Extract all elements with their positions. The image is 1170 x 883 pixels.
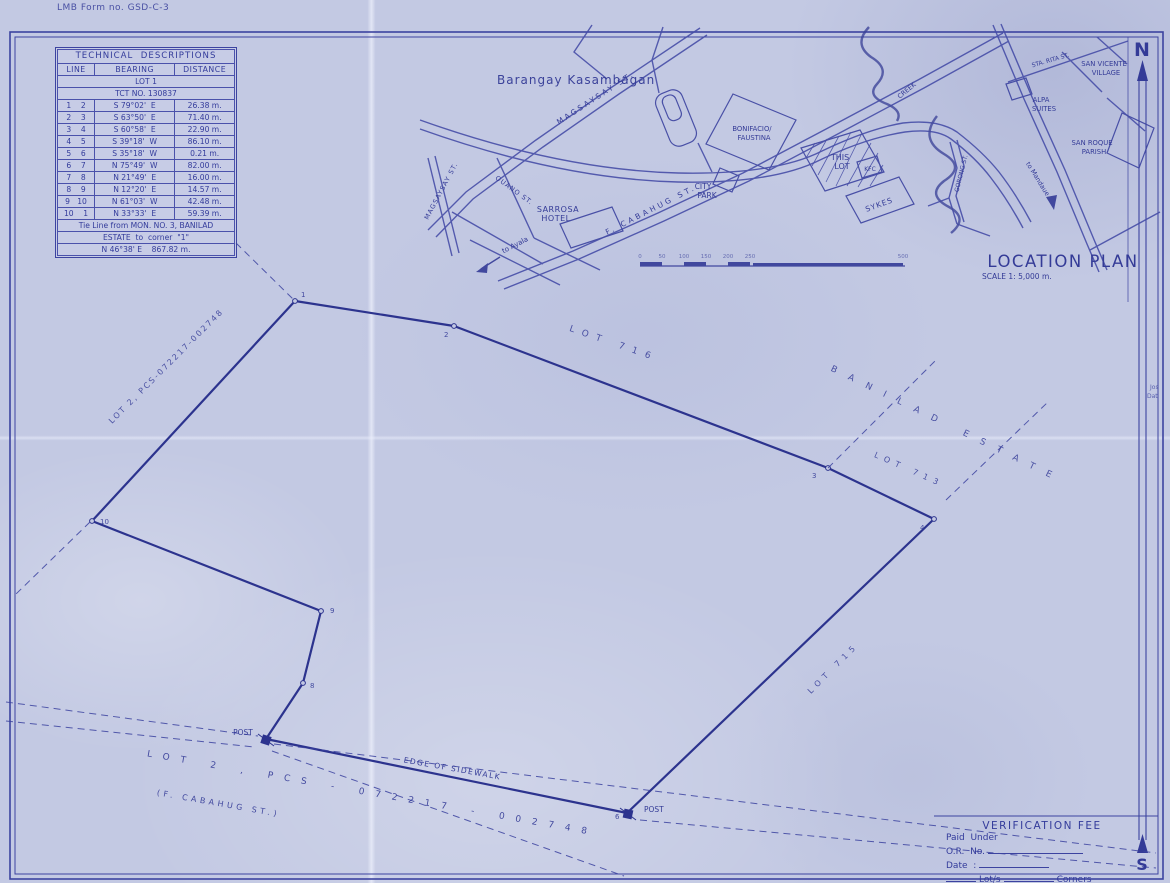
table-row: 1 2S 79°02' E26.38 m. (58, 100, 235, 112)
blueprint-sheet: LMB Form no. GSD-C-3 (0, 0, 1170, 883)
col-header-distance: DISTANCE (175, 64, 235, 76)
north-arrow (1137, 60, 1148, 853)
svg-text:1: 1 (301, 291, 305, 299)
lot716-label: LOT 716 (568, 324, 659, 364)
table-row: 6 7N 75°49' W82.00 m. (58, 160, 235, 172)
location-plan-title: LOCATION PLAN (987, 252, 1138, 271)
table-row: 8 9N 12°20' E14.57 m. (58, 184, 235, 196)
svg-text:2: 2 (444, 331, 448, 339)
corners-label: Corners (1057, 875, 1092, 883)
svg-text:50: 50 (659, 254, 666, 260)
bonifacio-label-1: BONIFACIO/ (732, 125, 772, 133)
verification-title: VERIFICATION FEE (946, 820, 1138, 832)
street-line (452, 212, 543, 264)
table-row: 10 1N 33°33' E59.39 m. (58, 208, 235, 220)
bonifacio-label-2: FAUSTINA (737, 134, 770, 142)
cabahug-paren-label: (F. CABAHUG ST.) (156, 788, 281, 819)
san-roque-label-1: SAN ROQUE (1071, 139, 1112, 147)
corner-ticks (90, 299, 937, 686)
this-lot-label-2: LOT (834, 162, 849, 171)
post-left-label: POST (233, 728, 253, 737)
post-right-label: POST (644, 805, 664, 814)
to-mandaue-label: to Mandaue (1024, 160, 1051, 197)
svg-text:250: 250 (745, 254, 756, 260)
tie-line-note-2: ESTATE to corner "1" (58, 232, 235, 244)
lot-label: LOT 1 (58, 76, 235, 88)
tct-label: TCT NO. 130837 (58, 88, 235, 100)
buildings (560, 78, 1154, 248)
street-line (698, 143, 712, 172)
lot2-upper-label: LOT 2, PCS-072217-002748 (107, 307, 225, 425)
city-park-label-1: CITY (695, 182, 712, 191)
edge-fragment-2: Dat (1147, 393, 1158, 400)
date-label: Date : (946, 861, 976, 871)
street-line (957, 224, 990, 236)
lots-blank (946, 873, 976, 882)
svg-text:100: 100 (679, 254, 690, 260)
svg-text:4: 4 (920, 524, 925, 532)
ouano-st-label: OUANO ST. (494, 174, 535, 207)
svg-text:150: 150 (701, 254, 712, 260)
banilad-estate-label: BANILAD ESTATE (829, 364, 1065, 486)
svg-text:9: 9 (330, 607, 334, 615)
svg-text:3: 3 (812, 472, 816, 480)
verification-fee-block: VERIFICATION FEE Paid Under O.R. No. Dat… (946, 820, 1138, 883)
to-ayala-arrow (476, 257, 500, 273)
cabahug-st-label: F. CABAHUG ST. (604, 183, 698, 237)
technical-descriptions-table: TECHNICAL DESCRIPTIONS LINE BEARING DIST… (55, 47, 237, 258)
lot713-label: LOT 713 (873, 450, 945, 489)
corner-number-labels: 1 2 3 4 6 8 9 10 (100, 291, 925, 821)
north-arrowhead-icon (1137, 60, 1148, 81)
col-header-line: LINE (58, 64, 95, 76)
alpa-label-1: ALPA (1033, 96, 1050, 104)
table-row: 7 8N 21°49' E16.00 m. (58, 172, 235, 184)
table-row: 2 3S 63°50' E71.40 m. (58, 112, 235, 124)
or-no-blank (988, 845, 1083, 854)
paid-under-label: Paid Under (946, 833, 998, 843)
san-roque-building (1107, 113, 1154, 168)
loop-block (653, 87, 700, 149)
sarrosa-label-2: HOTEL (541, 214, 570, 223)
svg-text:6: 6 (615, 813, 620, 821)
san-roque-label-2: PARISH (1082, 148, 1106, 156)
alpa-label-2: SUITES (1032, 105, 1056, 113)
scale-bar-ticks: 0 50 100 150 200 250 500 (638, 254, 908, 260)
city-park-label-2: PARK (697, 191, 717, 200)
san-vicente-label-2: VILLAGE (1092, 69, 1120, 77)
svg-text:0: 0 (638, 254, 642, 260)
lot715-label: LOT 715 (806, 641, 861, 696)
compass-north-label: N (1134, 39, 1150, 61)
street-line (498, 33, 1003, 281)
tie-line-note-1: Tie Line from MON. NO. 3, BANILAD (58, 220, 235, 232)
date-blank (979, 859, 1049, 868)
kfc-label: KFC (864, 166, 876, 173)
location-plan-scale: SCALE 1: 5,000 m. (982, 272, 1052, 281)
to-mandaue-arrow-icon (1046, 195, 1057, 210)
sykes-label: SYKES (864, 196, 894, 214)
svg-text:8: 8 (310, 682, 314, 690)
table-row: 9 10N 61°03' W42.48 m. (58, 196, 235, 208)
street-line (1090, 212, 1160, 250)
col-header-bearing: BEARING (95, 64, 175, 76)
scale-bar (640, 262, 905, 266)
lots-label: Lot/s (979, 875, 1001, 883)
table-row: 5 6S 35°18' W0.21 m. (58, 148, 235, 160)
sarrosa-label-1: SARROSA (537, 205, 579, 214)
svg-text:10: 10 (100, 518, 109, 526)
table-title: TECHNICAL DESCRIPTIONS (58, 50, 235, 64)
or-no-label: O.R. No. (946, 847, 985, 857)
post-symbol-right (620, 808, 636, 820)
this-lot-label-1: THIS (830, 153, 849, 162)
sta-rita-st-label: STA. RITA ST. (1031, 52, 1070, 69)
street-line (574, 25, 607, 79)
corners-blank (1004, 873, 1054, 882)
san-vicente-label-1: SAN VICENTE (1081, 60, 1127, 68)
edge-fragment-1: Jos (1150, 384, 1159, 391)
lot1-boundary (92, 301, 934, 813)
svg-text:500: 500 (898, 254, 909, 260)
to-ayala-label: to Ayala (501, 235, 530, 255)
table-row: 3 4S 60°58' E22.90 m. (58, 124, 235, 136)
svg-text:200: 200 (723, 254, 734, 260)
tie-line-value: N 46°38' E 867.82 m. (58, 244, 235, 256)
table-row: 4 5S 39°18' W86.10 m. (58, 136, 235, 148)
